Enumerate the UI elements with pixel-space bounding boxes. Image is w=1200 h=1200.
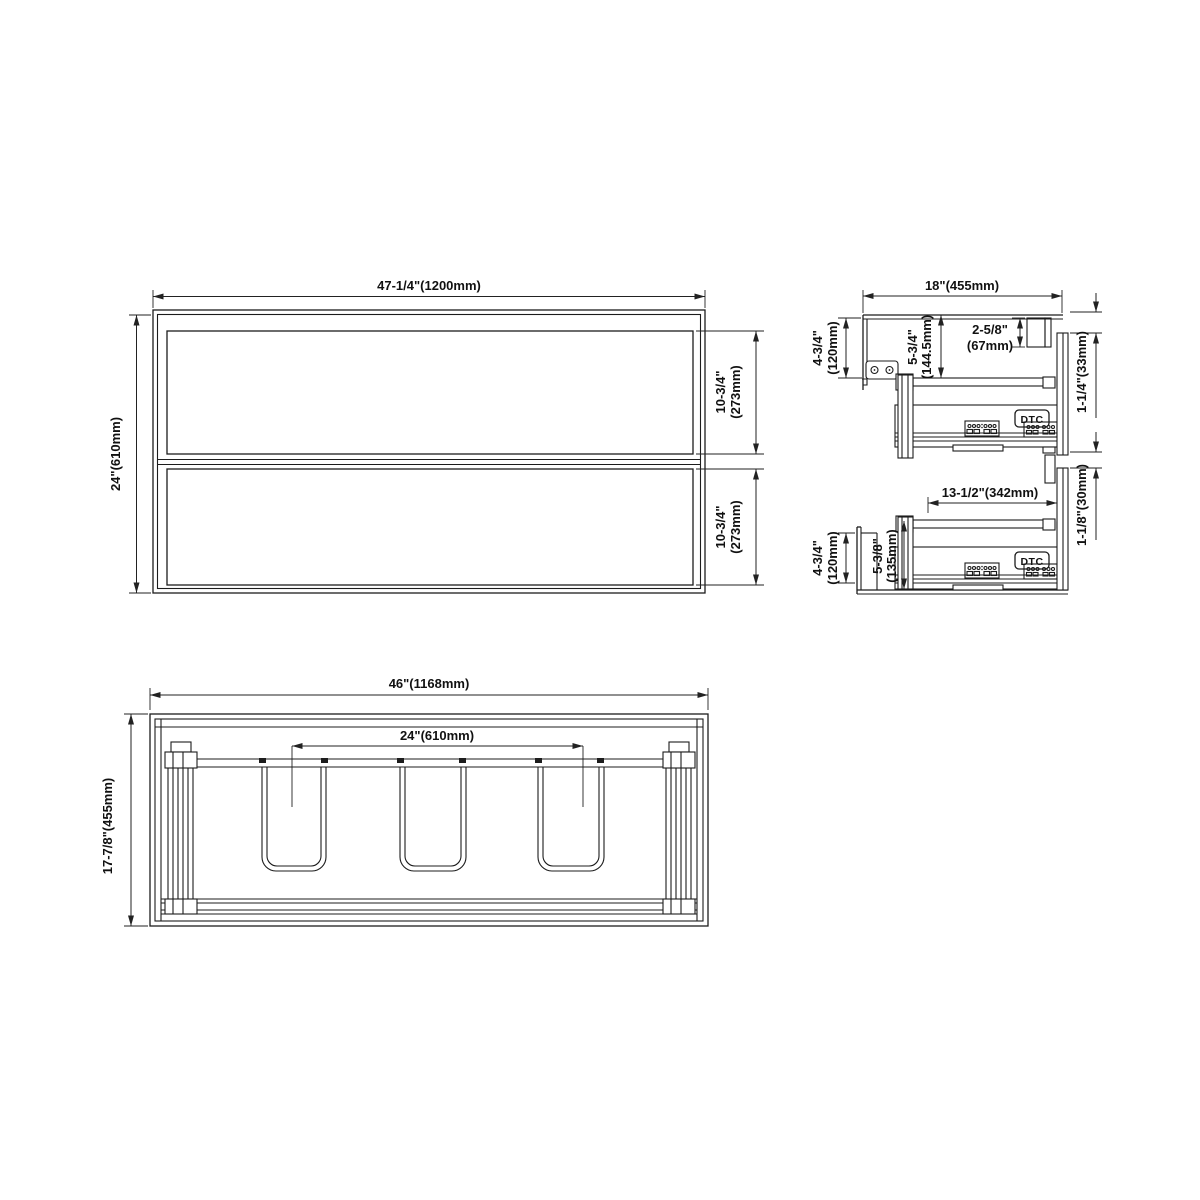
top-back-offset-label-mm: (120mm) xyxy=(825,321,840,374)
front-drawer2-label-in: 10-3/4" xyxy=(713,505,728,548)
bottom-back-offset-label-mm: (120mm) xyxy=(825,531,840,584)
top-rail-height-label-in: 5-3/4" xyxy=(905,329,920,365)
side-depth-label: 18"(455mm) xyxy=(925,278,999,293)
vanity-dimension-drawing: 47-1/4"(1200mm) 24"(610mm) 10-3/4" (273m… xyxy=(0,0,1200,1200)
top-rail-height-label-mm: (144.5mm) xyxy=(919,315,934,379)
sink-centers-label: 24"(610mm) xyxy=(400,728,474,743)
lower-back-bracket xyxy=(898,517,913,589)
top-back-offset-label-in: 4-3/4" xyxy=(810,330,825,366)
plan-depth-label: 17-7/8"(455mm) xyxy=(100,778,115,875)
lower-drawer-slide-assembly: DTC xyxy=(895,516,1065,590)
hang-rail-label-mm: (67mm) xyxy=(967,338,1013,353)
hang-rail-label-in: 2-5/8" xyxy=(972,322,1008,337)
front-width-label: 47-1/4"(1200mm) xyxy=(377,278,481,293)
upper-back-bracket xyxy=(898,375,913,458)
front-height-label: 24"(610mm) xyxy=(108,417,123,491)
page-background xyxy=(0,0,1200,1200)
slide-length-label: 13-1/2"(342mm) xyxy=(942,485,1039,500)
bottom-back-offset-label-in: 4-3/4" xyxy=(810,540,825,576)
front-top-gap-label: 1-1/4"(33mm) xyxy=(1074,331,1089,413)
drawer-box-height-label-mm: (135mm) xyxy=(884,529,899,582)
front-drawer2-label-mm: (273mm) xyxy=(728,500,743,553)
plan-width-label: 46"(1168mm) xyxy=(389,676,470,691)
front-drawer1-label-in: 10-3/4" xyxy=(713,370,728,413)
front-mid-gap-label: 1-1/8"(30mm) xyxy=(1074,464,1089,546)
drawer-box-height-label-in: 5-3/8" xyxy=(870,538,885,574)
lower-slide-rail xyxy=(913,520,1045,528)
front-drawer1-label-mm: (273mm) xyxy=(728,365,743,418)
drawing-svg: 47-1/4"(1200mm) 24"(610mm) 10-3/4" (273m… xyxy=(0,0,1200,1200)
